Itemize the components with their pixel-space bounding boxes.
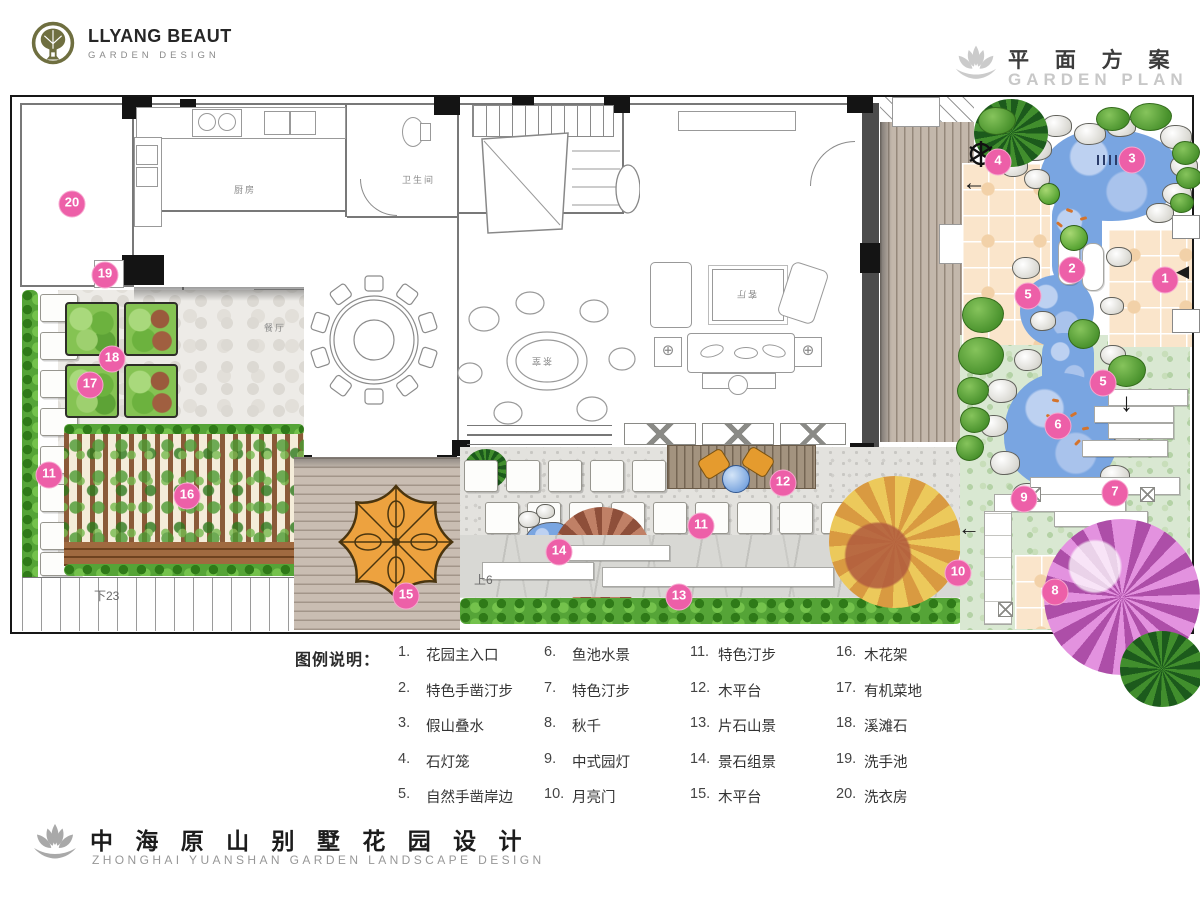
marker-8: 8 <box>1042 579 1069 606</box>
company-logo: LLYANG BEAUT GARDEN DESIGN <box>30 20 232 66</box>
marker-14: 14 <box>546 539 573 566</box>
legend-num: 7. <box>544 680 572 696</box>
ball-tree <box>1060 225 1088 251</box>
legend-list: 1.花园主入口 2.特色手凿汀步 3.假山叠水 4.石灯笼 5.自然手凿岸边 6… <box>398 644 978 822</box>
rug: 客厅 <box>712 269 784 321</box>
project-title-en: ZHONGHAI YUANSHAN GARDEN LANDSCAPE DESIG… <box>92 853 545 867</box>
marker-2: 2 <box>1059 257 1086 284</box>
marker-7: 7 <box>1102 480 1129 507</box>
legend-num: 3. <box>398 715 426 731</box>
dark-leaf-cluster <box>1120 631 1200 707</box>
door-arc <box>810 141 855 186</box>
side-table-plant: ⊕ <box>654 337 682 367</box>
wall-shadow <box>134 287 304 301</box>
stepping-stone <box>590 460 624 492</box>
legend-item: 2.特色手凿汀步 <box>398 680 540 716</box>
door-arc <box>360 179 397 216</box>
legend-label: 溪滩石 <box>864 715 908 736</box>
legend-num: 19. <box>836 751 864 767</box>
legend-label: 洗手池 <box>864 751 908 772</box>
marker-11b: 11 <box>36 462 63 489</box>
ceiling-fan <box>728 375 748 395</box>
deck-shadow <box>880 122 892 442</box>
column <box>434 97 460 115</box>
project-title-cn: 中 海 原 山 别 墅 花 园 设 计 <box>90 822 530 856</box>
stone-slab <box>482 562 594 580</box>
legend-num: 13. <box>690 715 718 731</box>
step-slab <box>1094 406 1174 423</box>
shrub <box>1170 193 1194 213</box>
stair-up-label: 上6 <box>474 571 493 588</box>
legend-num: 20. <box>836 786 864 802</box>
marker-10: 10 <box>945 560 972 587</box>
stepping-stone <box>464 460 498 492</box>
legend-label: 中式园灯 <box>572 751 630 772</box>
legend-label: 月亮门 <box>572 786 616 807</box>
legend-label: 木花架 <box>864 644 908 665</box>
kitchen-sink <box>290 111 316 135</box>
stove-burner <box>218 113 236 131</box>
hedge-strip <box>64 424 304 434</box>
column <box>847 97 873 113</box>
legend-item: 13.片石山景 <box>690 715 832 751</box>
legend-item: 15.木平台 <box>690 786 832 822</box>
legend-heading: 图例说明： <box>295 646 380 670</box>
marker-17: 17 <box>77 372 104 399</box>
legend-num: 6. <box>544 644 572 660</box>
legend-num: 15. <box>690 786 718 802</box>
legend-num: 12. <box>690 680 718 696</box>
marker-9: 9 <box>1011 486 1038 513</box>
legend-item: 6.鱼池水景 <box>544 644 686 680</box>
hedge-strip <box>64 564 304 576</box>
marker-15: 15 <box>393 583 420 610</box>
wall-right-band <box>862 103 879 449</box>
deck-notch <box>892 97 940 127</box>
legend-num: 16. <box>836 644 864 660</box>
legend-item: 17.有机菜地 <box>836 680 978 716</box>
legend-num: 5. <box>398 786 426 802</box>
wall <box>457 103 459 217</box>
stove-burner <box>198 113 216 131</box>
marker-19: 19 <box>92 262 119 289</box>
veggie-bed <box>124 302 178 356</box>
legend-item: 4.石灯笼 <box>398 751 540 787</box>
room-label-living: 客厅 <box>735 288 757 301</box>
marker-20: 20 <box>59 191 86 218</box>
rock <box>1014 349 1042 371</box>
column <box>122 255 164 285</box>
rock <box>1100 297 1124 315</box>
rock <box>987 379 1017 403</box>
window-x <box>702 423 774 445</box>
legend-item: 11.特色汀步 <box>690 644 832 680</box>
shrub <box>1176 167 1200 189</box>
legend-num: 18. <box>836 715 864 731</box>
entrance-pillar <box>1172 309 1200 333</box>
room-label-kitchen: 厨房 <box>234 183 256 196</box>
legend-label: 木平台 <box>718 680 762 701</box>
legend-item: 19.洗手池 <box>836 751 978 787</box>
legend-label: 片石山景 <box>718 715 776 736</box>
logo-subtitle: GARDEN DESIGN <box>88 50 232 61</box>
window-x <box>780 423 846 445</box>
lotus-icon-footer <box>28 820 82 864</box>
legend-label: 花园主入口 <box>426 644 499 665</box>
legend-item: 1.花园主入口 <box>398 644 540 680</box>
legend-item: 9.中式园灯 <box>544 751 686 787</box>
legend-num: 4. <box>398 751 426 767</box>
legend-label: 假山叠水 <box>426 715 484 736</box>
logo-title: LLYANG BEAUT <box>88 26 232 47</box>
legend-num: 14. <box>690 751 718 767</box>
legend-label: 景石组景 <box>718 751 776 772</box>
legend-num: 10. <box>544 786 572 802</box>
rock <box>536 504 555 519</box>
wall <box>134 210 346 212</box>
dining-table <box>309 274 439 406</box>
legend-label: 自然手凿岸边 <box>426 786 513 807</box>
legend-item: 5.自然手凿岸边 <box>398 786 540 822</box>
legend-num: 1. <box>398 644 426 660</box>
stepping-stone <box>632 460 666 492</box>
legend-label: 木平台 <box>718 786 762 807</box>
sink-basin <box>136 167 158 187</box>
armchair <box>650 262 692 328</box>
marker-4: 4 <box>985 149 1012 176</box>
legend-label: 特色手凿汀步 <box>426 680 513 701</box>
legend-item: 3.假山叠水 <box>398 715 540 751</box>
column <box>860 243 880 273</box>
deck-table <box>722 465 750 493</box>
veggie-bed <box>124 364 178 418</box>
legend-num: 8. <box>544 715 572 731</box>
chaise <box>776 260 829 325</box>
marker-3: 3 <box>1119 147 1146 174</box>
stone-slab <box>568 545 670 561</box>
lamp-x-mark <box>998 602 1013 617</box>
cushion <box>734 347 758 359</box>
marker-5b: 5 <box>1090 370 1117 397</box>
marker-18: 18 <box>99 346 126 373</box>
exterior-steps <box>22 577 304 631</box>
rock <box>1012 257 1040 279</box>
tv-unit <box>678 111 796 131</box>
window <box>467 425 612 445</box>
legend-label: 石灯笼 <box>426 751 470 772</box>
marker-6: 6 <box>1045 413 1072 440</box>
marker-12: 12 <box>770 470 797 497</box>
legend-label: 秋千 <box>572 715 601 736</box>
marker-1: 1 <box>1152 267 1179 294</box>
tree-logo-icon <box>30 20 76 66</box>
hedge-strip <box>22 290 38 602</box>
stepping-stone <box>737 502 771 534</box>
legend-item: 8.秋千 <box>544 715 686 751</box>
legend-item: 10.月亮门 <box>544 786 686 822</box>
marker-11: 11 <box>688 513 715 540</box>
wall <box>20 103 22 287</box>
rock <box>990 451 1020 475</box>
parasol-umbrella <box>336 482 456 602</box>
plan-title-en: GARDEN PLAN <box>1008 70 1188 90</box>
step-slab <box>1108 423 1174 439</box>
direction-arrow-down: ↓ <box>1120 389 1133 415</box>
legend-label: 特色汀步 <box>718 644 776 665</box>
rock <box>1106 247 1132 267</box>
legend-num: 9. <box>544 751 572 767</box>
garden-plan-sheet: LLYANG BEAUT GARDEN DESIGN 平 面 方 案 GARDE… <box>0 0 1200 900</box>
direction-arrow-left: ← <box>962 171 986 195</box>
marker-5: 5 <box>1015 283 1042 310</box>
legend-label: 洗衣房 <box>864 786 908 807</box>
yellow-tree <box>829 476 961 608</box>
direction-arrow-left: ← <box>958 517 980 539</box>
sink-basin <box>136 145 158 165</box>
ball-tree <box>1038 183 1060 205</box>
legend-item: 7.特色汀步 <box>544 680 686 716</box>
room-label-bath: 卫生间 <box>402 173 435 186</box>
legend-num: 11. <box>690 644 718 660</box>
stepping-stone <box>779 502 813 534</box>
legend-item: 14.景石组景 <box>690 751 832 787</box>
stair-count-label: 下23 <box>94 587 119 604</box>
stepping-stone <box>653 502 687 534</box>
window-x <box>624 423 696 445</box>
legend-label: 鱼池水景 <box>572 644 630 665</box>
side-table-plant: ⊕ <box>794 337 822 367</box>
legend-item: 20.洗衣房 <box>836 786 978 822</box>
stair-landing <box>470 131 640 241</box>
room-label-tea: 茶室 <box>530 355 552 368</box>
lamp-x-mark <box>1140 487 1155 502</box>
legend-item: 12.木平台 <box>690 680 832 716</box>
stepping-stone <box>506 460 540 492</box>
stepping-stone <box>485 502 519 534</box>
rock <box>1030 311 1056 331</box>
marker-13: 13 <box>666 584 693 611</box>
toilet-tank <box>420 123 431 141</box>
legend-label: 特色汀步 <box>572 680 630 701</box>
step-slab <box>1082 440 1168 457</box>
legend-num: 17. <box>836 680 864 696</box>
room-label-dining: 餐厅 <box>264 321 286 334</box>
kitchen-sink <box>264 111 290 135</box>
marker-16: 16 <box>174 483 201 510</box>
legend-num: 2. <box>398 680 426 696</box>
lotus-icon-header <box>950 42 1002 84</box>
legend-item: 18.溪滩石 <box>836 715 978 751</box>
legend-label: 有机菜地 <box>864 680 922 701</box>
wall <box>347 216 457 218</box>
wall-shadow <box>294 457 460 469</box>
stepping-stone <box>548 460 582 492</box>
stone-slab <box>602 567 834 587</box>
legend-item: 16.木花架 <box>836 644 978 680</box>
pergola-beam <box>64 542 304 566</box>
garden-plan-drawing: 厨房 卫生间 餐厅 <box>10 95 1194 634</box>
entrance-pillar <box>1172 215 1200 239</box>
